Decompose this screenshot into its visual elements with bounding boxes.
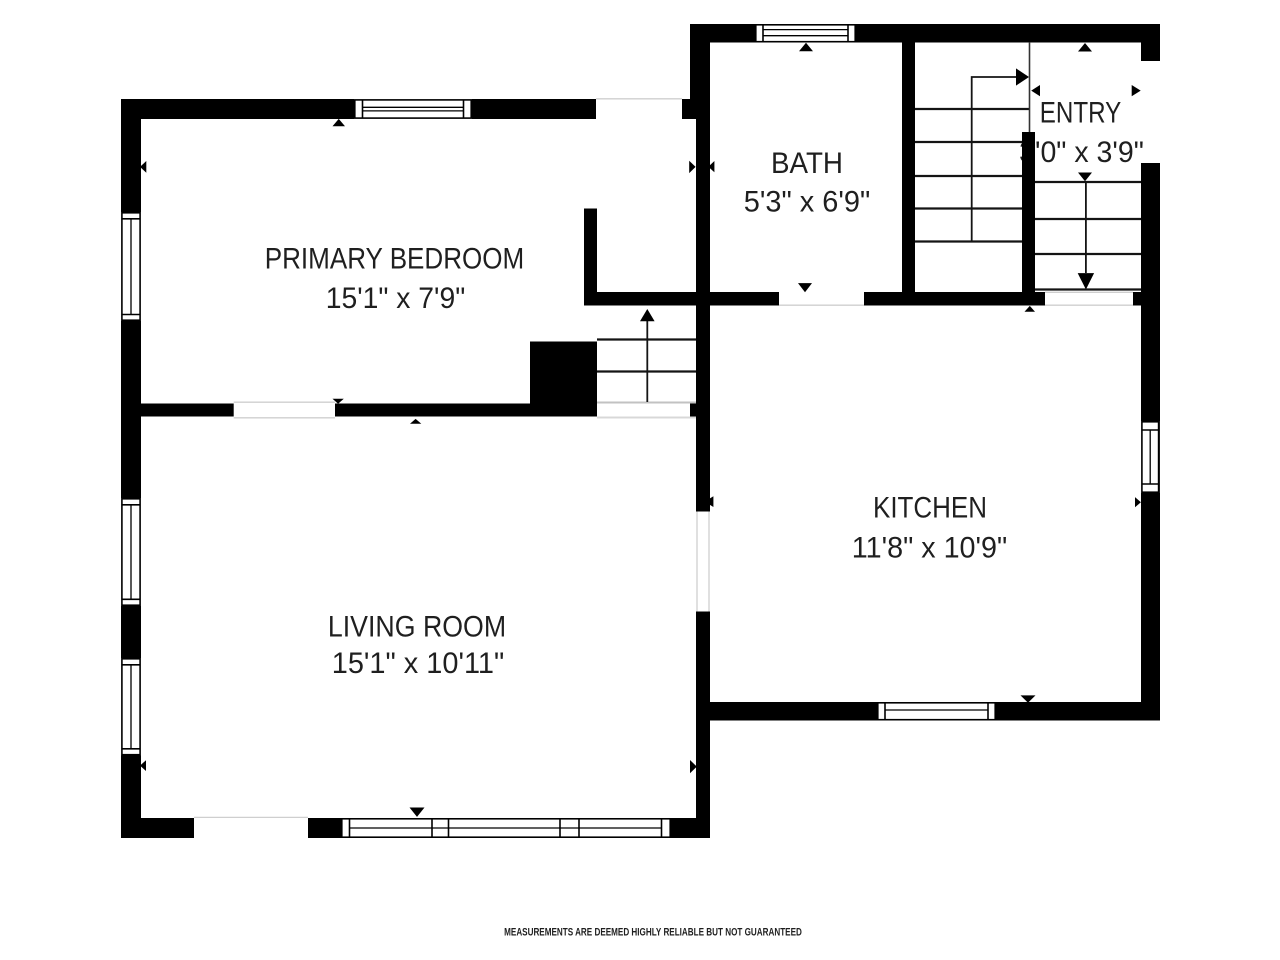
svg-text:15'1" x 7'9": 15'1" x 7'9"	[326, 282, 466, 315]
svg-text:11'8" x 10'9": 11'8" x 10'9"	[852, 532, 1007, 565]
svg-text:MEASUREMENTS ARE DEEMED HIGHLY: MEASUREMENTS ARE DEEMED HIGHLY RELIABLE …	[504, 927, 802, 939]
svg-text:5'3" x 6'9": 5'3" x 6'9"	[744, 186, 871, 219]
svg-text:BATH: BATH	[771, 147, 843, 180]
svg-text:15'1" x 10'11": 15'1" x 10'11"	[332, 647, 505, 680]
svg-text:3'0" x 3'9": 3'0" x 3'9"	[1019, 136, 1144, 169]
svg-text:LIVING ROOM: LIVING ROOM	[328, 610, 506, 643]
svg-text:KITCHEN: KITCHEN	[873, 492, 987, 525]
svg-text:ENTRY: ENTRY	[1040, 97, 1122, 130]
svg-text:PRIMARY BEDROOM: PRIMARY BEDROOM	[265, 243, 525, 276]
